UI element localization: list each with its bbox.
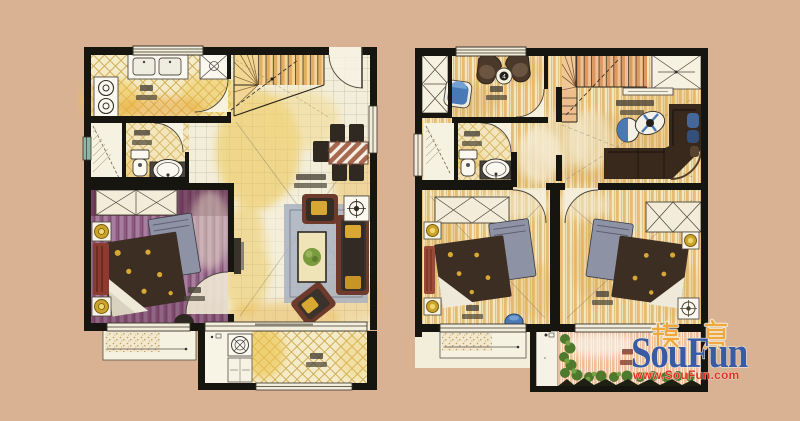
svg-text:www.SouFun.com: www.SouFun.com [632, 368, 739, 382]
svg-text:4: 4 [502, 74, 506, 81]
